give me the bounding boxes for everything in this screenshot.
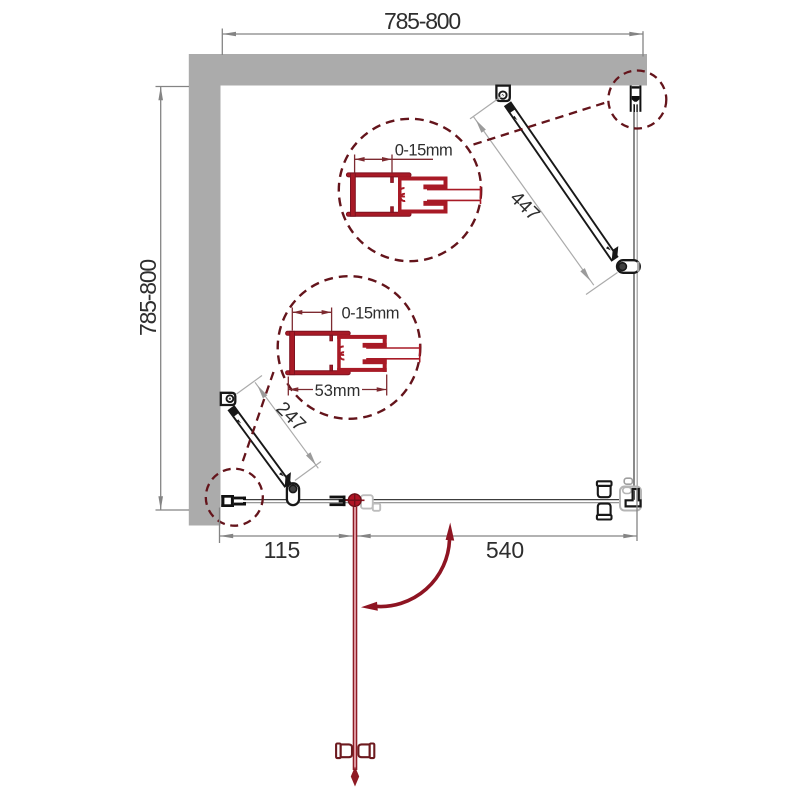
svg-text:785-800: 785-800 bbox=[384, 8, 460, 34]
svg-text:540: 540 bbox=[486, 537, 524, 563]
svg-text:785-800: 785-800 bbox=[135, 260, 161, 336]
svg-text:53mm: 53mm bbox=[315, 382, 361, 400]
svg-text:0-15mm: 0-15mm bbox=[395, 141, 453, 159]
svg-text:0-15mm: 0-15mm bbox=[342, 304, 400, 322]
svg-text:115: 115 bbox=[264, 537, 301, 563]
